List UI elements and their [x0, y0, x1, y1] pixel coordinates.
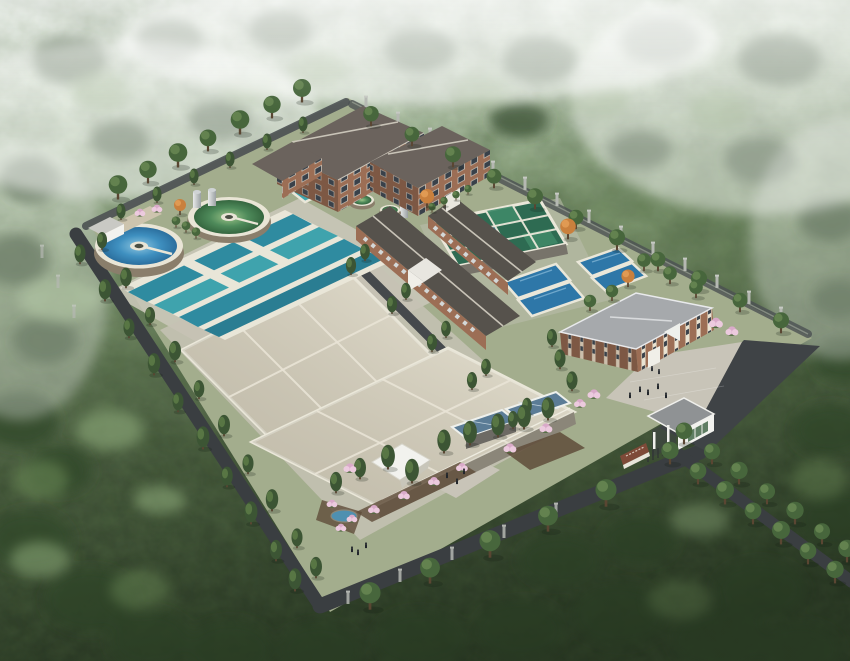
person — [665, 392, 667, 398]
person — [463, 468, 465, 474]
fence-post — [40, 245, 44, 258]
fence-post — [450, 547, 454, 560]
fence-post — [56, 275, 60, 288]
person — [351, 546, 353, 552]
fence-post — [72, 305, 76, 318]
person — [651, 366, 653, 371]
fence-post — [555, 193, 559, 206]
person — [658, 369, 660, 374]
clarifier-hub-center — [135, 244, 144, 248]
canopy-post — [667, 425, 670, 443]
fence-post — [715, 275, 719, 288]
fence-post — [398, 569, 402, 582]
fence-post — [747, 291, 751, 304]
silo-top — [193, 190, 201, 194]
silo — [208, 190, 216, 206]
person — [629, 392, 631, 398]
person — [365, 542, 367, 548]
person — [357, 549, 359, 555]
fence-post — [523, 177, 527, 190]
person — [456, 478, 458, 484]
silo — [193, 192, 201, 208]
aerial-rendering — [0, 0, 850, 661]
person — [647, 389, 649, 395]
canopy-post — [653, 432, 656, 449]
clarifier-hub-center — [225, 215, 233, 219]
fence-post — [346, 591, 350, 604]
silo-top — [208, 188, 216, 192]
atmosphere-haze — [0, 0, 850, 110]
rendering-stage: Aerial 3D architectural rendering of a w… — [0, 0, 850, 661]
person — [639, 386, 641, 392]
person — [657, 383, 659, 389]
fence-post — [683, 258, 687, 271]
fence-post — [587, 210, 591, 223]
person — [446, 472, 448, 478]
fence-post — [502, 525, 506, 538]
